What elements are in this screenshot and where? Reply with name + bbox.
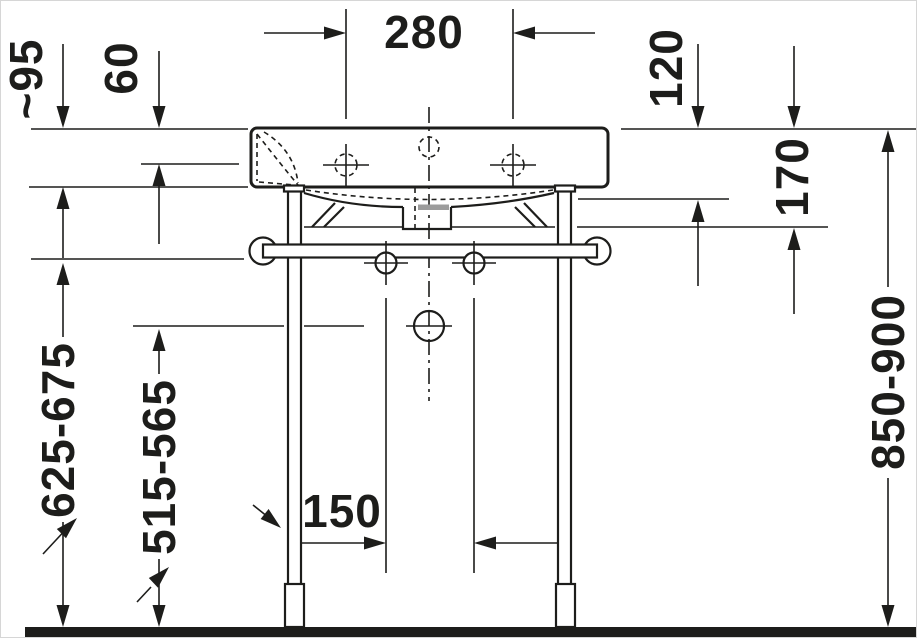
technical-drawing-page: 280 ~95 60 120 170 850-900 xyxy=(0,0,917,638)
dim-label-515-565: 515-565 xyxy=(133,379,185,555)
leader-arrow-icon xyxy=(261,509,281,528)
leg-cap-left xyxy=(284,186,304,192)
dim-label-850-900: 850-900 xyxy=(862,294,914,470)
dim-label-625-675: 625-675 xyxy=(32,342,84,518)
leg-cap-right xyxy=(555,186,575,192)
foot-left xyxy=(285,584,304,627)
floor-line xyxy=(25,627,917,638)
dim-rim-to-trap-bottom: 170 xyxy=(766,46,818,314)
dim-tap-hole-distance: 280 xyxy=(264,6,595,119)
towel-rail xyxy=(263,245,597,258)
leg-pointer-arrow xyxy=(253,505,281,528)
metal-console xyxy=(250,186,611,628)
dim-label-150: 150 xyxy=(302,485,382,537)
dim-label-170: 170 xyxy=(766,137,818,217)
dim-rim-front-drop: ~95 xyxy=(1,38,70,258)
dim-label-120: 120 xyxy=(640,28,692,108)
technical-drawing-canvas: 280 ~95 60 120 170 850-900 xyxy=(1,1,917,638)
dim-drain-height: 515-565 xyxy=(133,329,185,627)
dim-rim-to-underside: 120 xyxy=(640,28,705,286)
foot-right xyxy=(556,584,575,627)
drain-trap-box xyxy=(403,207,451,229)
dim-rim-depth: 60 xyxy=(95,41,166,244)
dim-rail-height: 625-675 xyxy=(32,263,84,627)
dim-label-95: ~95 xyxy=(1,38,52,119)
dim-overall-height: 850-900 xyxy=(862,130,914,627)
drain-slot-shading xyxy=(418,205,449,211)
dim-label-280: 280 xyxy=(384,6,464,58)
dim-label-60: 60 xyxy=(95,41,147,94)
